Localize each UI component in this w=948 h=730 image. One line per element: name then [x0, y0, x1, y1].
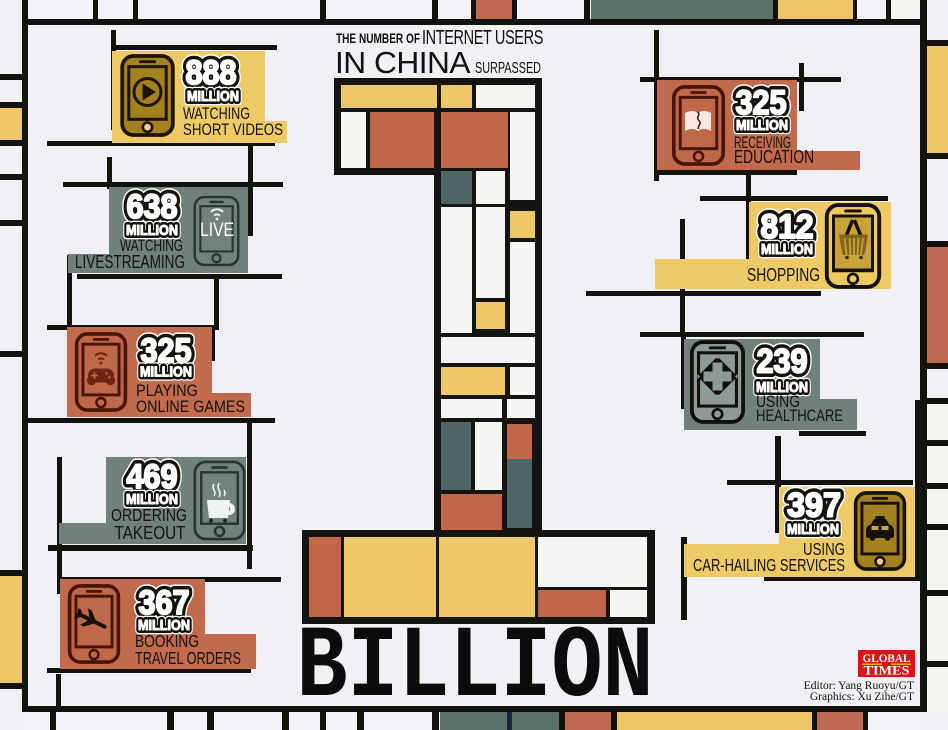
svg-text:ORDERING: ORDERING [111, 505, 187, 525]
svg-text:IN CHINA: IN CHINA [335, 45, 471, 80]
svg-text:THE NUMBER OF: THE NUMBER OF [336, 30, 420, 46]
svg-text:TRAVEL ORDERS: TRAVEL ORDERS [135, 648, 241, 668]
svg-text:SHOPPING: SHOPPING [747, 265, 820, 285]
svg-text:ONLINE GAMES: ONLINE GAMES [136, 397, 245, 416]
svg-text:SURPASSED: SURPASSED [475, 60, 541, 77]
svg-text:TIMES: TIMES [864, 664, 910, 678]
svg-text:LIVE: LIVE [200, 220, 234, 241]
svg-text:CAR-HAILING SERVICES: CAR-HAILING SERVICES [693, 555, 845, 575]
svg-text:TAKEOUT: TAKEOUT [115, 523, 186, 543]
svg-text:Graphics: Xu Zihe/GT: Graphics: Xu Zihe/GT [810, 691, 914, 703]
svg-text:HEALTHCARE: HEALTHCARE [756, 406, 843, 425]
svg-text:SHORT VIDEOS: SHORT VIDEOS [183, 120, 283, 139]
svg-text:BILLION: BILLION [297, 610, 654, 726]
svg-text:EDUCATION: EDUCATION [734, 147, 814, 167]
svg-text:LIVESTREAMING: LIVESTREAMING [75, 252, 185, 272]
